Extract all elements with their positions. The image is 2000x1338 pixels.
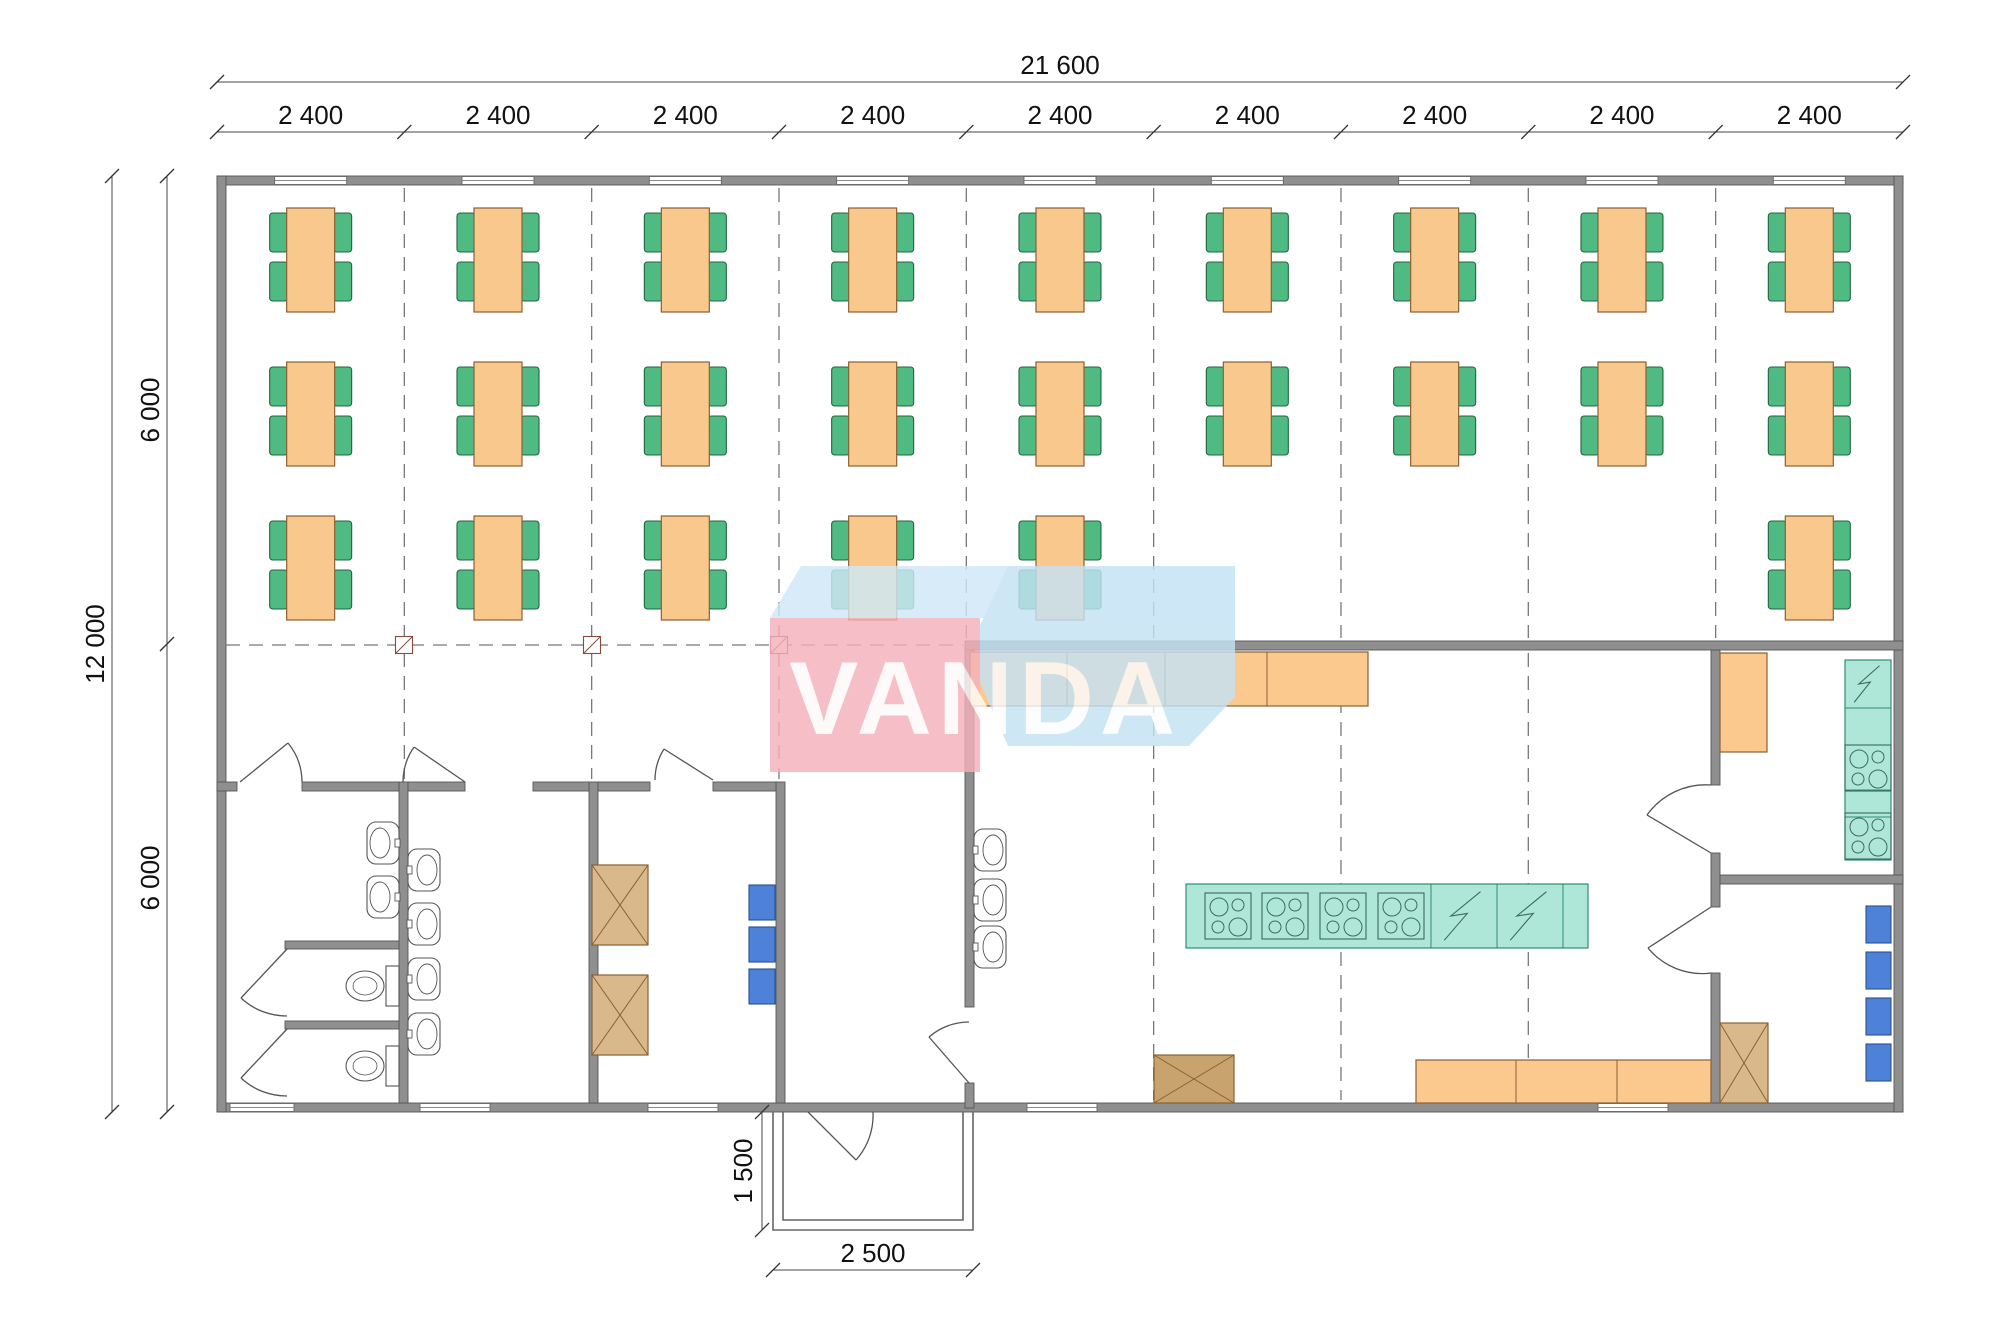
chair-icon [1832, 521, 1850, 560]
locker-icon [749, 969, 775, 1004]
door-wc-stall2 [241, 1029, 287, 1096]
chair-icon [1394, 416, 1412, 455]
chair-icon [896, 521, 914, 560]
chair-icon [896, 367, 914, 406]
wall-storeroom-left-c [1711, 973, 1720, 1103]
chair-icon [270, 416, 288, 455]
chair-icon [708, 262, 726, 301]
chair-icon [1019, 262, 1037, 301]
counter-top [1416, 1060, 1711, 1103]
wall-wc-top-a [217, 782, 237, 791]
chair-icon [521, 521, 539, 560]
chair-icon [1083, 416, 1101, 455]
chair-icon [521, 416, 539, 455]
chair-icon [1458, 367, 1476, 406]
wall-washroom2-top-b [713, 782, 776, 791]
chair-icon [1645, 262, 1663, 301]
sink-icon [973, 829, 1006, 871]
cabinet-icon [592, 865, 648, 945]
toilet-bowl [346, 971, 384, 1001]
chair-icon [1270, 367, 1288, 406]
dining-table-set [1394, 362, 1476, 466]
chair-icon [1768, 213, 1786, 252]
wall-washroom2-top-a [598, 782, 650, 791]
table-icon [1411, 362, 1459, 466]
chair-icon [1645, 213, 1663, 252]
dining-table-set [832, 362, 914, 466]
sink-tap [973, 846, 978, 854]
door-entrance [808, 1112, 873, 1160]
chair-icon [334, 570, 352, 609]
chair-icon [521, 262, 539, 301]
chair-icon [1768, 416, 1786, 455]
dining-table-set [1581, 208, 1663, 312]
chair-icon [334, 521, 352, 560]
chair-icon [832, 213, 850, 252]
sink-tap [407, 1030, 412, 1038]
dim-label-bay: 2 400 [840, 100, 905, 130]
dim-label-porch-depth: 1 500 [728, 1138, 758, 1203]
wall-washroom1-top-a [408, 782, 465, 791]
dim-label-bay: 2 400 [465, 100, 530, 130]
chair-icon [1206, 367, 1224, 406]
wall-wc-stall1 [285, 941, 399, 949]
sink-tap [407, 920, 412, 928]
chair-icon [457, 367, 475, 406]
chair-icon [644, 570, 662, 609]
dining-table-set [457, 516, 539, 620]
entrance-porch [773, 1112, 973, 1230]
toilet-tank [386, 966, 399, 1006]
chair-icon [896, 213, 914, 252]
table-icon [474, 208, 522, 312]
locker-icon [1866, 1044, 1891, 1081]
door-storeroom-bottom [1648, 907, 1711, 974]
chair-icon [896, 262, 914, 301]
wall-wc-top-b [302, 782, 399, 791]
table-icon [1036, 208, 1084, 312]
dining-table-set [1206, 208, 1288, 312]
chair-icon [270, 367, 288, 406]
chair-icon [521, 570, 539, 609]
chair-icon [1083, 213, 1101, 252]
chair-icon [1832, 570, 1850, 609]
sink-icon [367, 822, 400, 864]
wall-washroom2-right [776, 782, 785, 1103]
dim-label-bay: 2 400 [1777, 100, 1842, 130]
locker-icon [1866, 952, 1891, 989]
locker-icon [749, 885, 775, 920]
sink-icon [407, 849, 440, 891]
dim-label-bay: 2 400 [278, 100, 343, 130]
locker-icon [1866, 906, 1891, 943]
dining-table-set [1768, 362, 1850, 466]
table-icon [474, 362, 522, 466]
chair-icon [1832, 213, 1850, 252]
sink-tap [407, 866, 412, 874]
cabinet-icon [592, 975, 648, 1055]
wall-wc-right [399, 782, 408, 1103]
chair-icon [644, 213, 662, 252]
wall-storeroom-divider [1720, 875, 1903, 884]
chair-icon [1832, 367, 1850, 406]
table-icon [287, 516, 335, 620]
table-icon [287, 362, 335, 466]
chair-icon [832, 416, 850, 455]
sink-icon [407, 903, 440, 945]
chair-icon [708, 570, 726, 609]
dim-label-bay: 2 400 [1215, 100, 1280, 130]
chair-icon [457, 570, 475, 609]
chair-icon [521, 213, 539, 252]
dim-label-porch-width: 2 500 [840, 1238, 905, 1268]
chair-icon [1581, 367, 1599, 406]
wall-washroom1-top-b [533, 782, 589, 791]
chair-icon [1394, 213, 1412, 252]
chair-icon [1645, 367, 1663, 406]
chair-icon [1768, 367, 1786, 406]
chair-icon [1768, 262, 1786, 301]
table-icon [661, 208, 709, 312]
dining-table-set [1019, 362, 1101, 466]
table-icon [849, 208, 897, 312]
sink-icon [973, 879, 1006, 921]
counter-icon [1416, 1060, 1711, 1103]
chair-icon [644, 367, 662, 406]
chair-icon [1083, 262, 1101, 301]
dim-label-bay: 2 400 [1589, 100, 1654, 130]
chair-icon [1458, 416, 1476, 455]
cabinet-icon [1154, 1055, 1234, 1103]
chair-icon [1019, 416, 1037, 455]
chair-icon [832, 262, 850, 301]
chair-icon [457, 262, 475, 301]
toilet-tank [386, 1046, 399, 1086]
table-icon [1598, 208, 1646, 312]
locker-icon [1866, 998, 1891, 1035]
island-counter [1186, 884, 1588, 948]
chair-icon [1019, 521, 1037, 560]
chair-icon [270, 213, 288, 252]
sink-tap [395, 839, 400, 847]
sink-tap [973, 943, 978, 951]
dining-table-set [270, 208, 352, 312]
wall-vestibule-right-stub [965, 1083, 974, 1108]
columns-layer [396, 637, 788, 654]
chair-icon [1581, 416, 1599, 455]
sink-icon [407, 1013, 440, 1055]
chair-icon [1458, 262, 1476, 301]
dim-label-total-depth: 12 000 [80, 604, 110, 684]
chair-icon [1019, 213, 1037, 252]
dining-table-set [1394, 208, 1476, 312]
chair-icon [457, 213, 475, 252]
chair-icon [334, 367, 352, 406]
dim-label-depth-segment-1: 6 000 [135, 377, 165, 442]
chair-icon [457, 416, 475, 455]
chair-icon [644, 416, 662, 455]
sink-icon [367, 876, 400, 918]
door-vestibule-kitchen [929, 1022, 969, 1083]
chair-icon [521, 367, 539, 406]
wall-exterior-left [217, 176, 226, 1112]
floor-plan-canvas: 2 4002 4002 4002 4002 4002 4002 4002 400… [0, 0, 2000, 1338]
chair-icon [270, 262, 288, 301]
locker-icon [749, 927, 775, 962]
dining-table-set [457, 208, 539, 312]
table-icon [1598, 362, 1646, 466]
chair-icon [1083, 367, 1101, 406]
chair-icon [644, 262, 662, 301]
chair-icon [1645, 416, 1663, 455]
floor-plan-svg: 2 4002 4002 4002 4002 4002 4002 4002 400… [0, 0, 2000, 1338]
dining-table-set [1768, 516, 1850, 620]
table-icon [474, 516, 522, 620]
chair-icon [1394, 262, 1412, 301]
sink-icon [407, 958, 440, 1000]
dining-table-set [457, 362, 539, 466]
dim-label-total-width: 21 600 [1020, 50, 1100, 80]
chair-icon [1832, 262, 1850, 301]
wall-wc-stall2 [285, 1021, 399, 1029]
chair-icon [896, 416, 914, 455]
chair-icon [708, 367, 726, 406]
table-icon [849, 362, 897, 466]
dining-table-set [832, 208, 914, 312]
table-icon [1785, 208, 1833, 312]
dim-label-bay: 2 400 [1402, 100, 1467, 130]
chair-icon [832, 521, 850, 560]
dining-table-set [644, 516, 726, 620]
wall-storeroom-left-a [1711, 650, 1720, 785]
chair-icon [457, 521, 475, 560]
porch-outer-rail [773, 1112, 973, 1230]
chair-icon [1270, 416, 1288, 455]
dining-table-set [1581, 362, 1663, 466]
kitchen-island [1186, 884, 1588, 948]
chair-icon [270, 570, 288, 609]
door-wc [240, 743, 302, 782]
chair-icon [1768, 570, 1786, 609]
door-wc-stall1 [241, 949, 287, 1016]
chair-icon [334, 416, 352, 455]
sink-tap [395, 893, 400, 901]
chair-icon [1206, 416, 1224, 455]
wall-counter [1845, 660, 1891, 860]
chair-icon [1019, 367, 1037, 406]
chair-icon [1270, 262, 1288, 301]
cabinet-icon [1720, 1023, 1768, 1103]
chair-icon [334, 262, 352, 301]
door-storeroom-top [1647, 785, 1711, 853]
dim-label-bay: 2 400 [1027, 100, 1092, 130]
chair-icon [1083, 521, 1101, 560]
dining-table-set [1019, 208, 1101, 312]
chair-icon [644, 521, 662, 560]
table-icon [1223, 208, 1271, 312]
chair-icon [708, 416, 726, 455]
chair-icon [1768, 521, 1786, 560]
chair-icon [1206, 262, 1224, 301]
dining-table-set [270, 362, 352, 466]
table-icon [1411, 208, 1459, 312]
chair-icon [708, 521, 726, 560]
counter-top [1720, 653, 1767, 752]
chair-icon [708, 213, 726, 252]
chair-icon [832, 367, 850, 406]
chair-icon [1581, 213, 1599, 252]
toilet-bowl [346, 1051, 384, 1081]
watermark-shape-top [770, 566, 1008, 618]
sink-tap [973, 896, 978, 904]
table-icon [661, 516, 709, 620]
counter-icon [1720, 653, 1767, 752]
dining-table-set [1206, 362, 1288, 466]
table-icon [1036, 362, 1084, 466]
toilet-icon [346, 966, 399, 1006]
chair-icon [270, 521, 288, 560]
door-washroom2 [655, 749, 713, 780]
dining-table-set [1768, 208, 1850, 312]
dining-table-set [644, 208, 726, 312]
door-washroom1 [403, 747, 465, 782]
sink-icon [973, 926, 1006, 968]
wall-storeroom-left-b [1711, 853, 1720, 907]
watermark: VANDA [770, 566, 1235, 772]
table-icon [1785, 362, 1833, 466]
dim-label-depth-segment-2: 6 000 [135, 845, 165, 910]
dining-table-set [644, 362, 726, 466]
chair-icon [1394, 367, 1412, 406]
table-icon [661, 362, 709, 466]
table-icon [1785, 516, 1833, 620]
dim-label-bay: 2 400 [653, 100, 718, 130]
porch-inner-rail [783, 1112, 963, 1220]
table-icon [1223, 362, 1271, 466]
dining-table-set [270, 516, 352, 620]
chair-icon [1832, 416, 1850, 455]
sink-tap [407, 975, 412, 983]
watermark-text: VANDA [789, 641, 1181, 757]
toilet-icon [346, 1046, 399, 1086]
chair-icon [1270, 213, 1288, 252]
chair-icon [1458, 213, 1476, 252]
chair-icon [1206, 213, 1224, 252]
table-icon [287, 208, 335, 312]
chair-icon [334, 213, 352, 252]
chair-icon [1581, 262, 1599, 301]
